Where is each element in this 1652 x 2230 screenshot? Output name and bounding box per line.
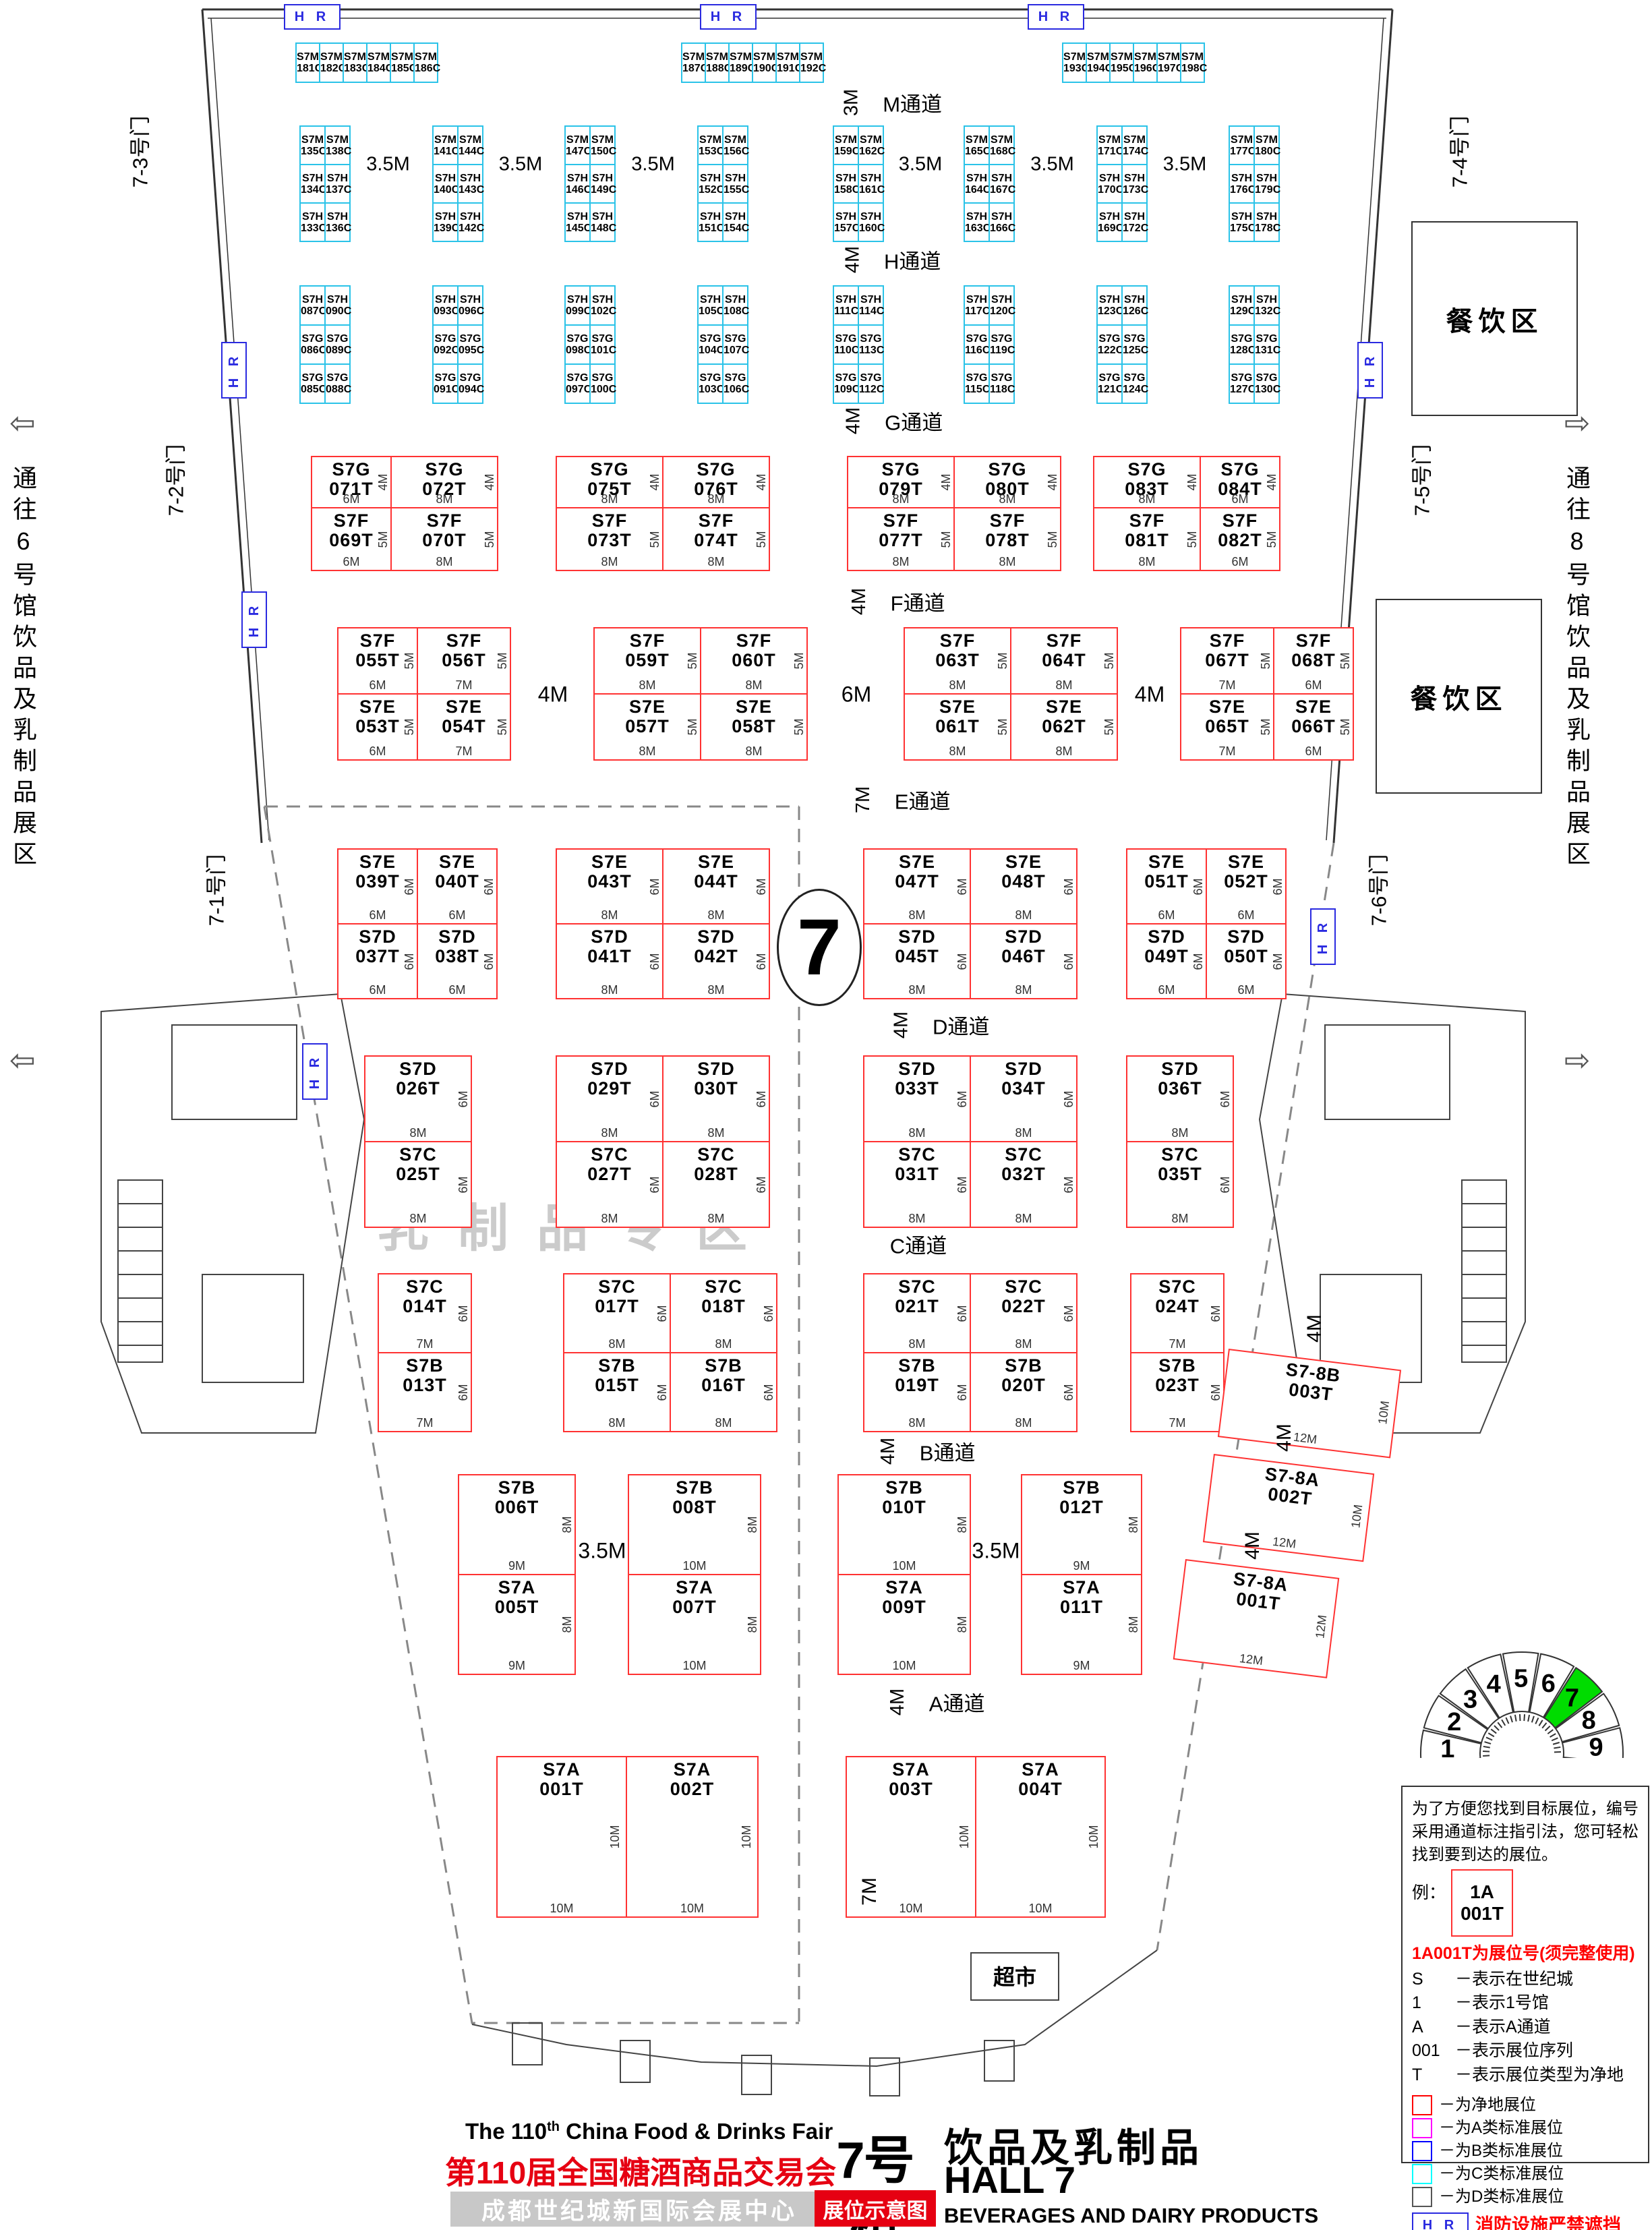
booth-s7h-120c: S7H120C bbox=[989, 285, 1015, 326]
gap-size-label: 4M bbox=[1135, 682, 1164, 707]
booth-s7h-096c: S7H096C bbox=[457, 285, 483, 326]
legend-example-booth: 1A 001T bbox=[1451, 1869, 1513, 1937]
hr-marker-top3: H R bbox=[1028, 4, 1084, 30]
booth-s7e-058t: S7E058T8M5M bbox=[700, 693, 808, 761]
hr-marker-right1: H R bbox=[1357, 342, 1383, 399]
booth-s7g-107c: S7G107C bbox=[722, 324, 748, 365]
hr-marker-legend: H R bbox=[1412, 2212, 1469, 2230]
booth-s7c-031t: S7C031T8M6M bbox=[863, 1141, 971, 1228]
legend-swatches: －为净地展位－为A类标准展位－为B类标准展位－为C类标准展位－为D类标准展位 bbox=[1412, 2094, 1639, 2208]
booth-s7g-094c: S7G094C bbox=[457, 363, 483, 404]
gap-size-label: 3.5M bbox=[1163, 154, 1206, 176]
gap-size-label: 3.5M bbox=[499, 154, 542, 176]
legend-intro: 为了方便您找到目标展位，编号采用通道标注指引法，您可轻松找到要到达的展位。 bbox=[1412, 1798, 1639, 1867]
svg-text:9: 9 bbox=[1589, 1733, 1603, 1758]
legend-item: 1－表示1号馆 bbox=[1412, 1991, 1639, 2016]
booth-s7m-198c: S7M198C bbox=[1180, 42, 1205, 83]
booth-s7b-019t: S7B019T8M6M bbox=[863, 1352, 971, 1432]
booth-s7f-055t: S7F055T6M5M bbox=[337, 627, 418, 695]
booth-s7g-115c: S7G115C bbox=[964, 363, 990, 404]
booth-s7c-017t: S7C017T8M6M bbox=[563, 1273, 671, 1353]
aisle-label-B: 4MB通道 bbox=[875, 1436, 976, 1467]
booth-s7c-035t: S7C035T8M6M bbox=[1126, 1141, 1234, 1228]
booth-s7b-006t: S7B006T9M8M bbox=[458, 1474, 576, 1575]
gap-size-label: 6M bbox=[842, 682, 871, 707]
booth-s7a-004t: S7A004T10M10M bbox=[975, 1756, 1106, 1918]
booth-s7f-063t: S7F063T8M5M bbox=[904, 627, 1011, 695]
legend-swatch-row: －为净地展位 bbox=[1412, 2094, 1639, 2117]
booth-s7m-144c: S7M144C bbox=[457, 125, 483, 165]
booth-s7h-179c: S7H179C bbox=[1253, 164, 1280, 204]
booth-s7c-014t: S7C014T7M6M bbox=[378, 1273, 472, 1353]
booth-s7e-054t: S7E054T7M5M bbox=[417, 693, 511, 761]
gap-size-label: 4M bbox=[1273, 1424, 1296, 1452]
booth-s7m-196c: S7M196C bbox=[1133, 42, 1158, 83]
booth-s7h-167c: S7H167C bbox=[989, 164, 1015, 204]
booth-s7b-020t: S7B020T8M6M bbox=[970, 1352, 1078, 1432]
svg-text:5: 5 bbox=[1514, 1665, 1528, 1693]
booth-s7g-080t: S7G080T8M4M bbox=[953, 456, 1061, 508]
booth-s7g-092c: S7G092C bbox=[432, 324, 459, 365]
right-corridor-label: 通往8号馆饮品及乳制品展区 bbox=[1559, 465, 1594, 872]
booth-s7f-073t: S7F073T8M5M bbox=[556, 507, 663, 571]
booth-s7c-028t: S7C028T8M6M bbox=[662, 1141, 770, 1228]
legend-headline: 1A001T为展位号(须完整使用) bbox=[1412, 1942, 1639, 1966]
booth-s7a-002t: S7A002T10M10M bbox=[626, 1756, 759, 1918]
hr-marker-left2: H R bbox=[241, 591, 267, 648]
booth-s7m-162c: S7M162C bbox=[858, 125, 884, 165]
booth-s7g-097c: S7G097C bbox=[564, 363, 591, 404]
booth-s7h-173c: S7H173C bbox=[1121, 164, 1148, 204]
booth-s7a-001t: S7A001T10M10M bbox=[496, 1756, 627, 1918]
booth-s7g-079t: S7G079T8M4M bbox=[847, 456, 955, 508]
booth-s7d-037t: S7D037T6M6M bbox=[337, 923, 418, 999]
hr-marker-left1: H R bbox=[221, 342, 247, 399]
dining-area-top: 餐饮区 bbox=[1411, 221, 1578, 416]
booth-s7f-077t: S7F077T8M5M bbox=[847, 507, 955, 571]
booth-s7h-149c: S7H149C bbox=[589, 164, 616, 204]
booth-s7h-152c: S7H152C bbox=[697, 164, 724, 204]
legend-fire-row: H R 消防设施严禁遮挡 bbox=[1412, 2212, 1639, 2230]
booth-s7g-122c: S7G122C bbox=[1096, 324, 1123, 365]
booth-s7f-070t: S7F070T8M5M bbox=[390, 507, 498, 571]
svg-text:3: 3 bbox=[1463, 1685, 1477, 1713]
booth-s7m-177c: S7M177C bbox=[1229, 125, 1255, 165]
gate-7-2: 7-2号门 bbox=[159, 444, 189, 517]
svg-text:6: 6 bbox=[1541, 1670, 1556, 1698]
gate-7-5: 7-5号门 bbox=[1405, 444, 1436, 517]
booth-s7m-189c: S7M189C bbox=[728, 42, 753, 83]
booth-s7h-163c: S7H163C bbox=[964, 202, 990, 242]
gap-size-label: 4M bbox=[1303, 1314, 1326, 1343]
booth-s7m-174c: S7M174C bbox=[1121, 125, 1148, 165]
booth-s7g-076t: S7G076T8M4M bbox=[662, 456, 770, 508]
booth-s7h-166c: S7H166C bbox=[989, 202, 1015, 242]
booth-s7b-016t: S7B016T8M6M bbox=[670, 1352, 777, 1432]
booth-s7m-193c: S7M193C bbox=[1062, 42, 1087, 83]
booth-s7m-171c: S7M171C bbox=[1096, 125, 1123, 165]
booth-s7d-033t: S7D033T8M6M bbox=[863, 1055, 971, 1142]
booth-s7g-103c: S7G103C bbox=[697, 363, 724, 404]
booth-s7g-128c: S7G128C bbox=[1229, 324, 1255, 365]
svg-text:2: 2 bbox=[1447, 1708, 1461, 1736]
booth-s7d-030t: S7D030T8M6M bbox=[662, 1055, 770, 1142]
legend-example-label: 例： bbox=[1412, 1881, 1446, 1906]
hall-locator-fan: 123456789 bbox=[1411, 1600, 1633, 1758]
booth-s7h-123c: S7H123C bbox=[1096, 285, 1123, 326]
left-arrow-bottom-icon: ⇦ bbox=[9, 1042, 36, 1078]
booth-s7m-195c: S7M195C bbox=[1109, 42, 1134, 83]
booth-s7h-160c: S7H160C bbox=[858, 202, 884, 242]
booth-s7g-100c: S7G100C bbox=[589, 363, 616, 404]
gate-7-6: 7-6号门 bbox=[1362, 854, 1392, 927]
booth-s7h-105c: S7H105C bbox=[697, 285, 724, 326]
booth-s7f-064t: S7F064T8M5M bbox=[1010, 627, 1118, 695]
booth-s7m-188c: S7M188C bbox=[705, 42, 730, 83]
right-arrow-bottom-icon: ⇨ bbox=[1564, 1042, 1591, 1078]
booth-s7h-111c: S7H111C bbox=[833, 285, 859, 326]
booth-s7h-140c: S7H140C bbox=[432, 164, 459, 204]
booth-s7h-133c: S7H133C bbox=[299, 202, 326, 242]
booth-s7g-086c: S7G086C bbox=[299, 324, 326, 365]
legend-item: 001－表示展位序列 bbox=[1412, 2039, 1639, 2063]
hr-marker-top2: H R bbox=[700, 4, 757, 30]
aisle-label-A: 4MA通道 bbox=[885, 1687, 985, 1718]
booth-s7m-194c: S7M194C bbox=[1086, 42, 1111, 83]
aisle-label-F: 4MF通道 bbox=[846, 587, 945, 617]
booth-s7b-010t: S7B010T10M8M bbox=[837, 1474, 971, 1575]
booth-s7e-047t: S7E047T8M6M bbox=[863, 848, 971, 925]
booth-s7h-134c: S7H134C bbox=[299, 164, 326, 204]
booth-s7g-109c: S7G109C bbox=[833, 363, 859, 404]
booth-s7h-154c: S7H154C bbox=[722, 202, 748, 242]
booth-s7d-034t: S7D034T8M6M bbox=[970, 1055, 1078, 1142]
booth-s7m-135c: S7M135C bbox=[299, 125, 326, 165]
booth-s7h-099c: S7H099C bbox=[564, 285, 591, 326]
booth-s7m-190c: S7M190C bbox=[752, 42, 777, 83]
booth-s7c-025t: S7C025T8M6M bbox=[364, 1141, 472, 1228]
booth-s7h-114c: S7H114C bbox=[858, 285, 884, 326]
booth-s7h-175c: S7H175C bbox=[1229, 202, 1255, 242]
booth-s7g-095c: S7G095C bbox=[457, 324, 483, 365]
booth-s7d-029t: S7D029T8M6M bbox=[556, 1055, 663, 1142]
booth-s7f-060t: S7F060T8M5M bbox=[700, 627, 808, 695]
booth-s7h-137c: S7H137C bbox=[324, 164, 351, 204]
booth-s7m-191c: S7M191C bbox=[775, 42, 800, 83]
booth-s7d-042t: S7D042T8M6M bbox=[662, 923, 770, 999]
svg-text:7: 7 bbox=[1565, 1684, 1579, 1712]
booth-s7h-155c: S7H155C bbox=[722, 164, 748, 204]
booth-s7g-106c: S7G106C bbox=[722, 363, 748, 404]
booth-s7m-192c: S7M192C bbox=[799, 42, 824, 83]
aisle-label-G: 4MG通道 bbox=[840, 406, 943, 436]
booth-s7h-170c: S7H170C bbox=[1096, 164, 1123, 204]
booth-s7e-039t: S7E039T6M6M bbox=[337, 848, 418, 925]
booth-s7g-110c: S7G110C bbox=[833, 324, 859, 365]
booth-s7m-197c: S7M197C bbox=[1156, 42, 1181, 83]
booth-s7e-057t: S7E057T8M5M bbox=[593, 693, 701, 761]
booth-s7m-181c: S7M181C bbox=[295, 42, 320, 83]
booth-s7h-145c: S7H145C bbox=[564, 202, 591, 242]
booth-s7h-090c: S7H090C bbox=[324, 285, 351, 326]
booth-s7g-127c: S7G127C bbox=[1229, 363, 1255, 404]
booth-s7c-018t: S7C018T8M6M bbox=[670, 1273, 777, 1353]
booth-s7g-121c: S7G121C bbox=[1096, 363, 1123, 404]
booth-s7m-187c: S7M187C bbox=[681, 42, 706, 83]
booth-s7h-172c: S7H172C bbox=[1121, 202, 1148, 242]
aisle-label-M: 3MM通道 bbox=[838, 88, 942, 118]
booth-s7h-143c: S7H143C bbox=[457, 164, 483, 204]
booth-s7h-169c: S7H169C bbox=[1096, 202, 1123, 242]
legend-box: 为了方便您找到目标展位，编号采用通道标注指引法，您可轻松找到要到达的展位。 例：… bbox=[1401, 1786, 1649, 2163]
legend-item: T－表示展位类型为净地 bbox=[1412, 2063, 1639, 2088]
booth-s7e-048t: S7E048T8M6M bbox=[970, 848, 1078, 925]
booth-s7a-007t: S7A007T10M8M bbox=[628, 1574, 761, 1675]
booth-s7d-049t: S7D049T6M6M bbox=[1126, 923, 1207, 999]
booth-s7h-151c: S7H151C bbox=[697, 202, 724, 242]
booth-s7g-104c: S7G104C bbox=[697, 324, 724, 365]
fire-warning: 消防设施严禁遮挡 bbox=[1475, 2212, 1621, 2230]
booth-s7h-117c: S7H117C bbox=[964, 285, 990, 326]
legend-item: A－表示A通道 bbox=[1412, 2016, 1639, 2040]
booth-s7m-183c: S7M183C bbox=[343, 42, 367, 83]
hall-name-en: HALL 7 bbox=[944, 2158, 1075, 2202]
booth-s7g-119c: S7G119C bbox=[989, 324, 1015, 365]
booth-s7b-023t: S7B023T7M6M bbox=[1130, 1352, 1225, 1432]
legend-swatch-row: －为A类标准展位 bbox=[1412, 2117, 1639, 2140]
gap-size-label: 3.5M bbox=[972, 1539, 1020, 1564]
booth-s7m-150c: S7M150C bbox=[589, 125, 616, 165]
booth-s7h-158c: S7H158C bbox=[833, 164, 859, 204]
booth-s7h-126c: S7H126C bbox=[1121, 285, 1148, 326]
booth-s7m-184c: S7M184C bbox=[366, 42, 391, 83]
booth-s7g-101c: S7G101C bbox=[589, 324, 616, 365]
legend-swatch-row: －为B类标准展位 bbox=[1412, 2140, 1639, 2163]
booth-s7g-130c: S7G130C bbox=[1253, 363, 1280, 404]
booth-s7e-051t: S7E051T6M6M bbox=[1126, 848, 1207, 925]
booth-s7a-011t: S7A011T9M8M bbox=[1021, 1574, 1142, 1675]
booth-s7d-041t: S7D041T8M6M bbox=[556, 923, 663, 999]
booth-s7d-045t: S7D045T8M6M bbox=[863, 923, 971, 999]
hr-marker-left3: H R bbox=[302, 1043, 328, 1100]
booth-s7h-102c: S7H102C bbox=[589, 285, 616, 326]
gap-size-label: 4M bbox=[538, 682, 568, 707]
booth-s7g-089c: S7G089C bbox=[324, 324, 351, 365]
booth-s7m-138c: S7M138C bbox=[324, 125, 351, 165]
gap-size-label: 3.5M bbox=[578, 1539, 626, 1564]
map-type-label: 展位示意图 bbox=[815, 2190, 936, 2227]
booth-s7b-012t: S7B012T9M8M bbox=[1021, 1474, 1142, 1575]
booth-s7h-087c: S7H087C bbox=[299, 285, 326, 326]
legend-example-line1: 1A bbox=[1470, 1881, 1494, 1903]
bottom-aisle-size: 7M bbox=[858, 1877, 881, 1906]
left-arrow-top-icon: ⇦ bbox=[9, 405, 36, 441]
booth-s7b-008t: S7B008T10M8M bbox=[628, 1474, 761, 1575]
booth-s7d-038t: S7D038T6M6M bbox=[417, 923, 498, 999]
booth-s7e-040t: S7E040T6M6M bbox=[417, 848, 498, 925]
booth-s7h-146c: S7H146C bbox=[564, 164, 591, 204]
booth-s7m-159c: S7M159C bbox=[833, 125, 859, 165]
booth-s7m-180c: S7M180C bbox=[1253, 125, 1280, 165]
booth-s7g-072t: S7G072T8M4M bbox=[390, 456, 498, 508]
booth-s7h-178c: S7H178C bbox=[1253, 202, 1280, 242]
booth-s7h-139c: S7H139C bbox=[432, 202, 459, 242]
booth-s7h-157c: S7H157C bbox=[833, 202, 859, 242]
booth-s7h-176c: S7H176C bbox=[1229, 164, 1255, 204]
booth-s7c-022t: S7C022T8M6M bbox=[970, 1273, 1078, 1353]
dining-area-mid: 餐饮区 bbox=[1376, 599, 1542, 794]
booth-s7a-009t: S7A009T10M8M bbox=[837, 1574, 971, 1675]
gap-size-label: 3.5M bbox=[899, 154, 942, 176]
aisle-label-C: C通道 bbox=[890, 1229, 947, 1260]
booth-s7e-062t: S7E062T8M5M bbox=[1010, 693, 1118, 761]
booth-s7f-068t: S7F068T6M5M bbox=[1273, 627, 1354, 695]
gate-7-3: 7-3号门 bbox=[123, 116, 154, 188]
hall-subtitle-en: BEVERAGES AND DAIRY PRODUCTS bbox=[944, 2204, 1318, 2228]
fair-title-chinese: 第110届全国糖酒商品交易会 bbox=[445, 2148, 823, 2193]
booth-s7e-053t: S7E053T6M5M bbox=[337, 693, 418, 761]
gap-size-label: 3.5M bbox=[631, 154, 674, 176]
booth-s7h-136c: S7H136C bbox=[324, 202, 351, 242]
booth-s7b-013t: S7B013T7M6M bbox=[378, 1352, 472, 1432]
booth-s7f-067t: S7F067T7M5M bbox=[1180, 627, 1274, 695]
floorplan-hall7: 乳制品专区 S7M181CS7M182CS7M183CS7M184CS7M185… bbox=[0, 0, 1652, 2230]
booth-s7m-147c: S7M147C bbox=[564, 125, 591, 165]
booth-s7c-021t: S7C021T8M6M bbox=[863, 1273, 971, 1353]
booth-s7h-148c: S7H148C bbox=[589, 202, 616, 242]
booth-s7b-015t: S7B015T8M6M bbox=[563, 1352, 671, 1432]
booth-s7h-129c: S7H129C bbox=[1229, 285, 1255, 326]
left-corridor-label: 通往6号馆饮品及乳制品展区 bbox=[5, 465, 40, 872]
booth-s7g-088c: S7G088C bbox=[324, 363, 351, 404]
fair-title-english: The 110th China Food & Drinks Fair bbox=[465, 2119, 802, 2144]
booth-s7e-065t: S7E065T7M5M bbox=[1180, 693, 1274, 761]
booth-s7g-085c: S7G085C bbox=[299, 363, 326, 404]
booth-s7c-024t: S7C024T7M6M bbox=[1130, 1273, 1225, 1353]
booth-s7e-061t: S7E061T8M5M bbox=[904, 693, 1011, 761]
booth-s7f-074t: S7F074T8M5M bbox=[662, 507, 770, 571]
booth-s7g-124c: S7G124C bbox=[1121, 363, 1148, 404]
gate-7-1: 7-1号门 bbox=[200, 854, 230, 927]
aisle-label-D: 4MD通道 bbox=[888, 1010, 990, 1040]
booth-s7f-081t: S7F081T8M5M bbox=[1093, 507, 1201, 571]
booth-s7a-005t: S7A005T9M8M bbox=[458, 1574, 576, 1675]
gap-size-label: 4M bbox=[1241, 1531, 1264, 1560]
svg-text:1: 1 bbox=[1440, 1735, 1454, 1758]
booth-s7h-161c: S7H161C bbox=[858, 164, 884, 204]
booth-s7-8a-001t: S7-8A001T12M12M bbox=[1173, 1559, 1340, 1678]
hr-marker-right2: H R bbox=[1310, 908, 1336, 965]
booth-s7d-036t: S7D036T8M6M bbox=[1126, 1055, 1234, 1142]
venue-label: 成都世纪城新国际会展中心 bbox=[450, 2192, 828, 2227]
booth-s7g-125c: S7G125C bbox=[1121, 324, 1148, 365]
booth-s7m-185c: S7M185C bbox=[390, 42, 415, 83]
aisle-label-H: 4MH通道 bbox=[839, 245, 941, 275]
booth-s7g-113c: S7G113C bbox=[858, 324, 884, 365]
booth-s7h-132c: S7H132C bbox=[1253, 285, 1280, 326]
booth-s7m-153c: S7M153C bbox=[697, 125, 724, 165]
booth-s7h-108c: S7H108C bbox=[722, 285, 748, 326]
legend-swatch-row: －为D类标准展位 bbox=[1412, 2185, 1639, 2208]
legend-swatch-row: －为C类标准展位 bbox=[1412, 2163, 1639, 2185]
booth-s7g-091c: S7G091C bbox=[432, 363, 459, 404]
booth-s7c-032t: S7C032T8M6M bbox=[970, 1141, 1078, 1228]
booth-s7m-168c: S7M168C bbox=[989, 125, 1015, 165]
legend-item: S－表示在世纪城 bbox=[1412, 1968, 1639, 1992]
booth-s7g-131c: S7G131C bbox=[1253, 324, 1280, 365]
booth-s7h-164c: S7H164C bbox=[964, 164, 990, 204]
booth-s7h-093c: S7H093C bbox=[432, 285, 459, 326]
gate-7-4: 7-4号门 bbox=[1443, 116, 1473, 188]
booth-s7g-118c: S7G118C bbox=[989, 363, 1015, 404]
booth-s7e-044t: S7E044T8M6M bbox=[662, 848, 770, 925]
booth-s7e-066t: S7E066T6M5M bbox=[1273, 693, 1354, 761]
booth-s7m-156c: S7M156C bbox=[722, 125, 748, 165]
booth-s7d-026t: S7D026T8M6M bbox=[364, 1055, 472, 1142]
hr-marker-top1: H R bbox=[284, 4, 341, 30]
booth-s7d-046t: S7D046T8M6M bbox=[970, 923, 1078, 999]
booth-s7g-075t: S7G075T8M4M bbox=[556, 456, 663, 508]
booth-s7g-112c: S7G112C bbox=[858, 363, 884, 404]
svg-text:8: 8 bbox=[1582, 1707, 1596, 1735]
booth-s7f-082t: S7F082T6M5M bbox=[1200, 507, 1280, 571]
gap-size-label: 3.5M bbox=[366, 154, 409, 176]
booth-s7m-165c: S7M165C bbox=[964, 125, 990, 165]
booth-s7g-083t: S7G083T8M4M bbox=[1093, 456, 1201, 508]
booth-s7g-098c: S7G098C bbox=[564, 324, 591, 365]
booth-s7m-141c: S7M141C bbox=[432, 125, 459, 165]
booth-s7g-116c: S7G116C bbox=[964, 324, 990, 365]
svg-text:4: 4 bbox=[1487, 1670, 1501, 1699]
booth-s7e-052t: S7E052T6M6M bbox=[1206, 848, 1287, 925]
booth-s7m-186c: S7M186C bbox=[413, 42, 438, 83]
booth-s7c-027t: S7C027T8M6M bbox=[556, 1141, 663, 1228]
booth-s7f-059t: S7F059T8M5M bbox=[593, 627, 701, 695]
booth-s7h-142c: S7H142C bbox=[457, 202, 483, 242]
booth-s7f-056t: S7F056T7M5M bbox=[417, 627, 511, 695]
legend-example-line2: 001T bbox=[1461, 1903, 1504, 1925]
supermarket-label: 超市 bbox=[993, 1960, 1036, 1991]
hall-number-circle: 7 bbox=[777, 889, 862, 1006]
aisle-label-E: 7ME通道 bbox=[850, 785, 951, 815]
booth-s7g-071t: S7G071T6M4M bbox=[311, 456, 392, 508]
booth-s7m-182c: S7M182C bbox=[319, 42, 344, 83]
booth-s7g-084t: S7G084T6M4M bbox=[1200, 456, 1280, 508]
booth-s7f-069t: S7F069T6M5M bbox=[311, 507, 392, 571]
booth-s7d-050t: S7D050T6M6M bbox=[1206, 923, 1287, 999]
booth-s7f-078t: S7F078T8M5M bbox=[953, 507, 1061, 571]
booth-s7e-043t: S7E043T8M6M bbox=[556, 848, 663, 925]
gap-size-label: 3.5M bbox=[1030, 154, 1073, 176]
